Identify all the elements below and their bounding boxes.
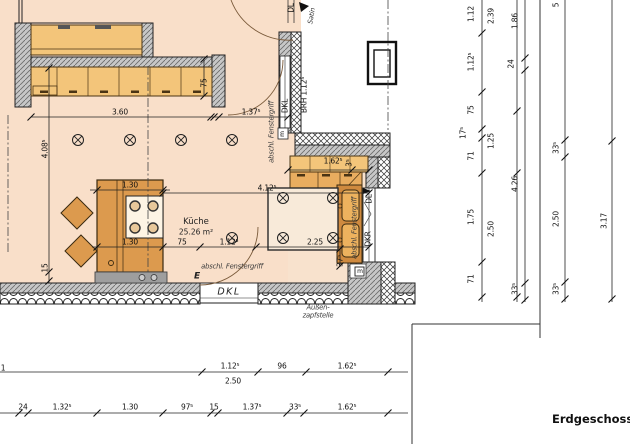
wall-pier-door <box>212 55 225 107</box>
dim-label: 75 <box>177 238 186 246</box>
wall-pier-mid <box>142 23 153 57</box>
floor-plan-drawing <box>0 0 630 444</box>
cabinet-mark <box>95 25 111 29</box>
dim-label: 75 <box>200 78 208 87</box>
window-label-dl: DL <box>365 194 373 204</box>
plinth-detail <box>151 275 157 281</box>
dim-label: 1.30 <box>122 181 138 189</box>
dim-label: 71 <box>467 151 475 160</box>
dim-label: 1.62⁵ <box>324 157 343 165</box>
window-handle-note: abschl. Fenstergriff <box>269 101 276 163</box>
dim-label: 3.60 <box>112 108 128 116</box>
window-label-dkl: DKL <box>281 99 289 113</box>
dim-label: 33⁵ <box>552 283 560 295</box>
dim-label: 15 <box>41 263 49 272</box>
dim-label: 15 <box>209 403 218 411</box>
outdoor-tap-note: zapfstelle <box>303 313 334 320</box>
dim-label: 3.17 <box>600 213 608 229</box>
dim-label: 4.26 <box>511 176 519 192</box>
dim-label: 1.62⁵ <box>338 403 357 411</box>
dim-label: 2.50 <box>225 377 241 385</box>
meter-mark: m <box>280 131 286 137</box>
outdoor-tap-note: Außen- <box>307 305 330 312</box>
dim-label: 1.30 <box>122 403 138 411</box>
floor-plan-canvas: 3.601.37⁵4.08⁵15751.304.12⁵1.30751.12⁵2.… <box>0 0 630 444</box>
dim-label: 1.12⁵ <box>220 238 239 246</box>
wall-right-mid-insulation <box>378 157 390 188</box>
window-label-dl: DL <box>287 3 295 13</box>
room-area: 25.26 m² <box>179 228 213 237</box>
dim-label: 1.86 <box>511 13 519 29</box>
dim-label: 96 <box>277 362 286 370</box>
dim-label: 3⁵ <box>345 159 353 166</box>
dim-label: 33⁵ <box>552 142 560 154</box>
upper-cabinet-row <box>31 25 142 55</box>
dim-label: 97⁵ <box>181 403 193 411</box>
plinth-detail <box>139 275 145 281</box>
dim-label: 1.62⁵ <box>338 362 357 370</box>
dim-label: 1.75 <box>467 209 475 225</box>
dim-label: 1 <box>1 364 6 372</box>
wall-step <box>295 145 390 157</box>
dim-label: 5 <box>552 3 560 8</box>
dim-label: 33⁵ <box>289 403 301 411</box>
cabinet-mark <box>58 25 70 29</box>
wall-top <box>31 57 225 67</box>
dim-label: 1.12⁵ <box>467 53 475 72</box>
dim-label: 71 <box>467 274 475 283</box>
window-label-dkl: DKL <box>217 287 240 297</box>
plan-title: Erdgeschoss <box>552 412 630 426</box>
kitchen-counter <box>31 67 212 96</box>
dim-label: 75 <box>467 105 475 114</box>
wall-bottom-left-insulation <box>0 293 200 304</box>
dim-label: 17⁵ <box>459 127 467 139</box>
room-name: Küche <box>183 217 209 227</box>
dim-label: 24 <box>507 59 515 68</box>
dim-label: 37⁵ <box>336 255 344 267</box>
dim-label: 1.37⁵ <box>242 108 261 116</box>
electrical-mark: E <box>194 273 200 282</box>
dim-label: 1.25 <box>487 133 495 149</box>
dim-label: 2.50 <box>552 211 560 227</box>
dim-label: 2.25 <box>307 238 323 246</box>
window-handle-note: abschl. Fenstergriff <box>201 264 263 271</box>
dim-label: 2.39 <box>487 8 495 24</box>
dim-label: 4.12⁵ <box>258 184 277 192</box>
meter-mark: m <box>357 269 363 275</box>
wall-corner-insulation <box>381 262 395 304</box>
dim-label: 1.12⁵ <box>221 362 240 370</box>
wall-step-insulation <box>295 133 390 145</box>
dim-label: 33⁵ <box>511 283 519 295</box>
dim-label: 1.37⁵ <box>243 403 262 411</box>
wall-pier-top-left <box>15 23 31 107</box>
dim-label: 1.12 <box>467 6 475 22</box>
dim-label: 2.50 <box>487 221 495 237</box>
plan-border-line <box>412 0 540 444</box>
sill-height-label: BRH 1.12⁵ <box>300 77 308 113</box>
dim-label: 4.08⁵ <box>41 140 49 159</box>
dim-label: 1.30 <box>122 238 138 246</box>
dim-label: 1.32⁵ <box>53 403 72 411</box>
window-label-dkr: DKR <box>364 231 372 246</box>
wall-bottom-left <box>0 283 200 293</box>
dim-label: 24 <box>18 403 27 411</box>
window-handle-note: abschl. Fenstergriff <box>352 197 359 259</box>
